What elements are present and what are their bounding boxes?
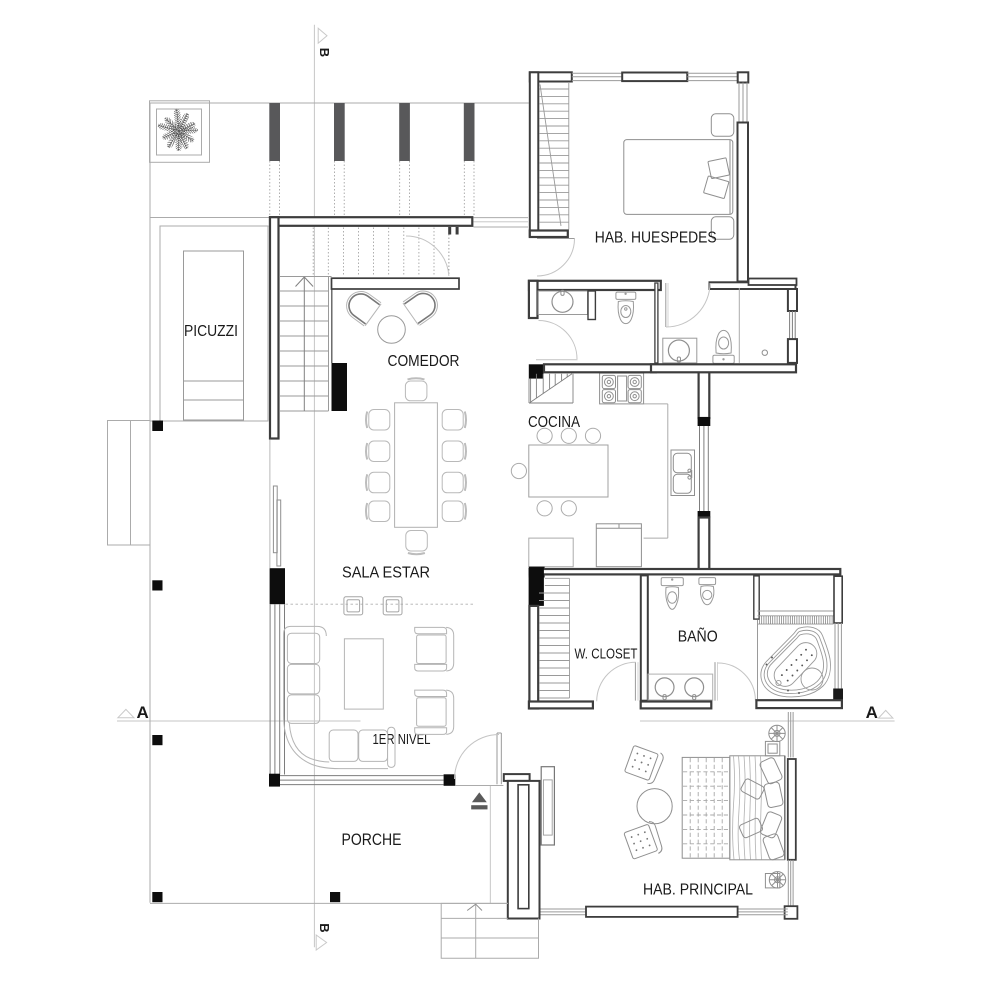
svg-text:COMEDOR: COMEDOR — [388, 353, 460, 370]
svg-text:B: B — [317, 923, 332, 932]
svg-text:A: A — [866, 703, 878, 722]
svg-text:HAB. PRINCIPAL: HAB. PRINCIPAL — [643, 882, 753, 899]
svg-text:W. CLOSET: W. CLOSET — [575, 646, 638, 663]
svg-text:B: B — [317, 48, 332, 57]
svg-text:SALA ESTAR: SALA ESTAR — [342, 565, 430, 582]
svg-text:A: A — [137, 703, 149, 722]
svg-text:PORCHE: PORCHE — [342, 830, 402, 849]
svg-text:COCINA: COCINA — [528, 414, 581, 431]
svg-text:BAÑO: BAÑO — [678, 626, 718, 646]
svg-text:PICUZZI: PICUZZI — [184, 323, 238, 340]
svg-text:HAB. HUESPEDES: HAB. HUESPEDES — [595, 230, 717, 247]
